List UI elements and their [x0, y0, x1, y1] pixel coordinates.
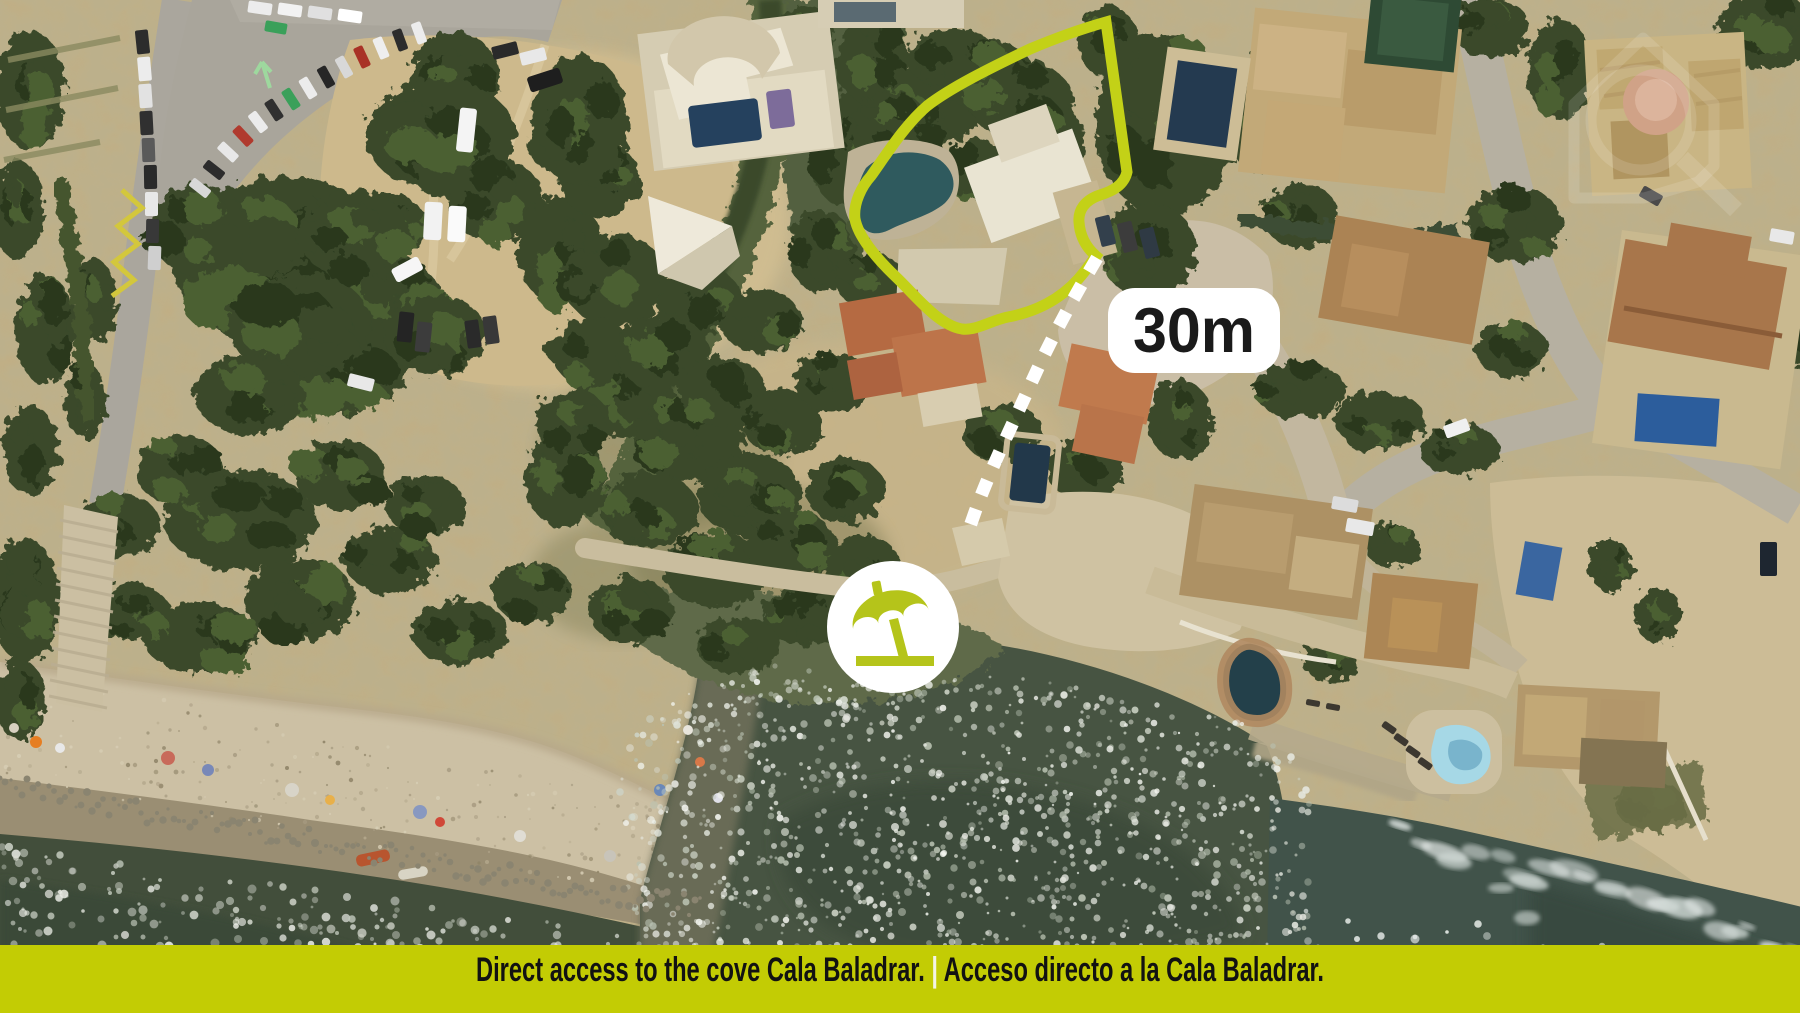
svg-text:Direct access to the cove Cala: Direct access to the cove Cala Baladrar.…: [476, 951, 1324, 989]
svg-text:30m: 30m: [1133, 296, 1255, 366]
